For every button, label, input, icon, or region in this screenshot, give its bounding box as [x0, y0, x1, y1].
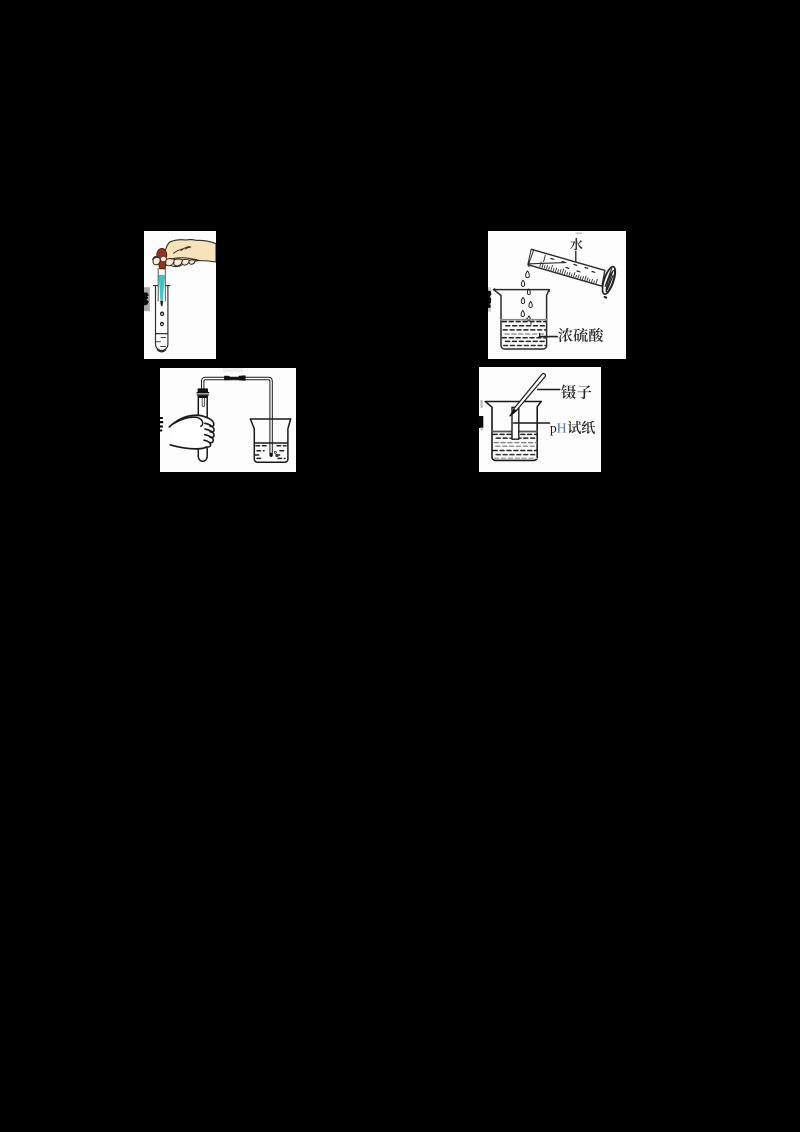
svg-text:H: H [557, 421, 567, 436]
